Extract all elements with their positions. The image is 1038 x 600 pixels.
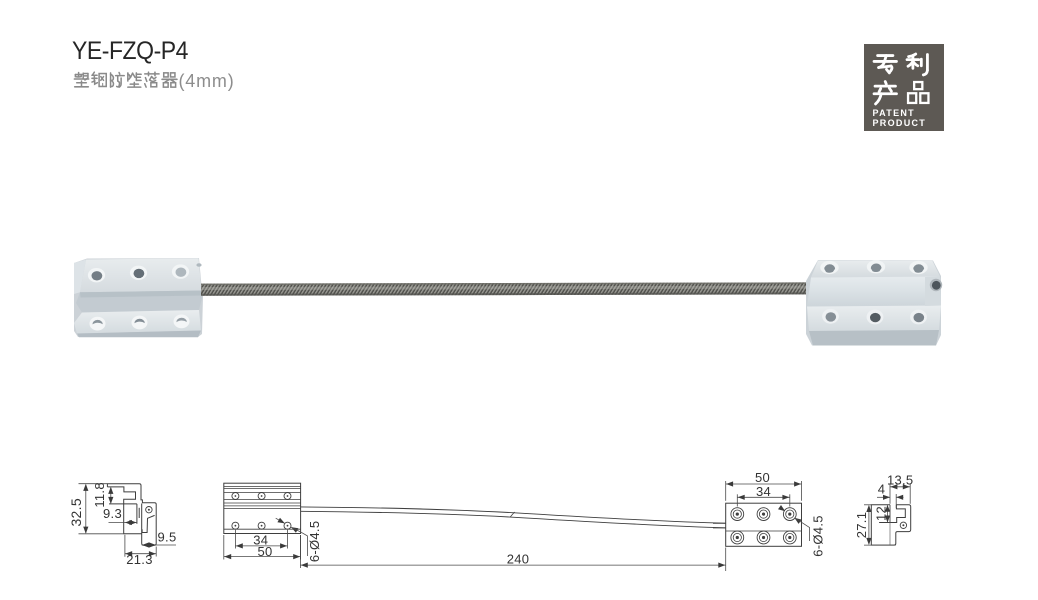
svg-text:240: 240 <box>507 552 530 567</box>
svg-text:13.5: 13.5 <box>887 472 914 487</box>
svg-text:(4mm): (4mm) <box>179 71 235 91</box>
svg-text:34: 34 <box>756 484 771 499</box>
svg-text:4: 4 <box>878 481 886 496</box>
svg-text:9.5: 9.5 <box>158 530 177 545</box>
svg-text:6-Ø4.5: 6-Ø4.5 <box>810 515 825 557</box>
svg-text:27.1: 27.1 <box>854 512 869 539</box>
svg-text:50: 50 <box>257 544 272 559</box>
svg-text:6-Ø4.5: 6-Ø4.5 <box>307 521 322 563</box>
svg-text:32.5: 32.5 <box>68 498 84 526</box>
svg-text:9.3: 9.3 <box>103 506 122 521</box>
svg-text:12: 12 <box>873 506 888 521</box>
svg-text:11.8: 11.8 <box>92 482 107 508</box>
svg-text:21.3: 21.3 <box>126 552 153 567</box>
